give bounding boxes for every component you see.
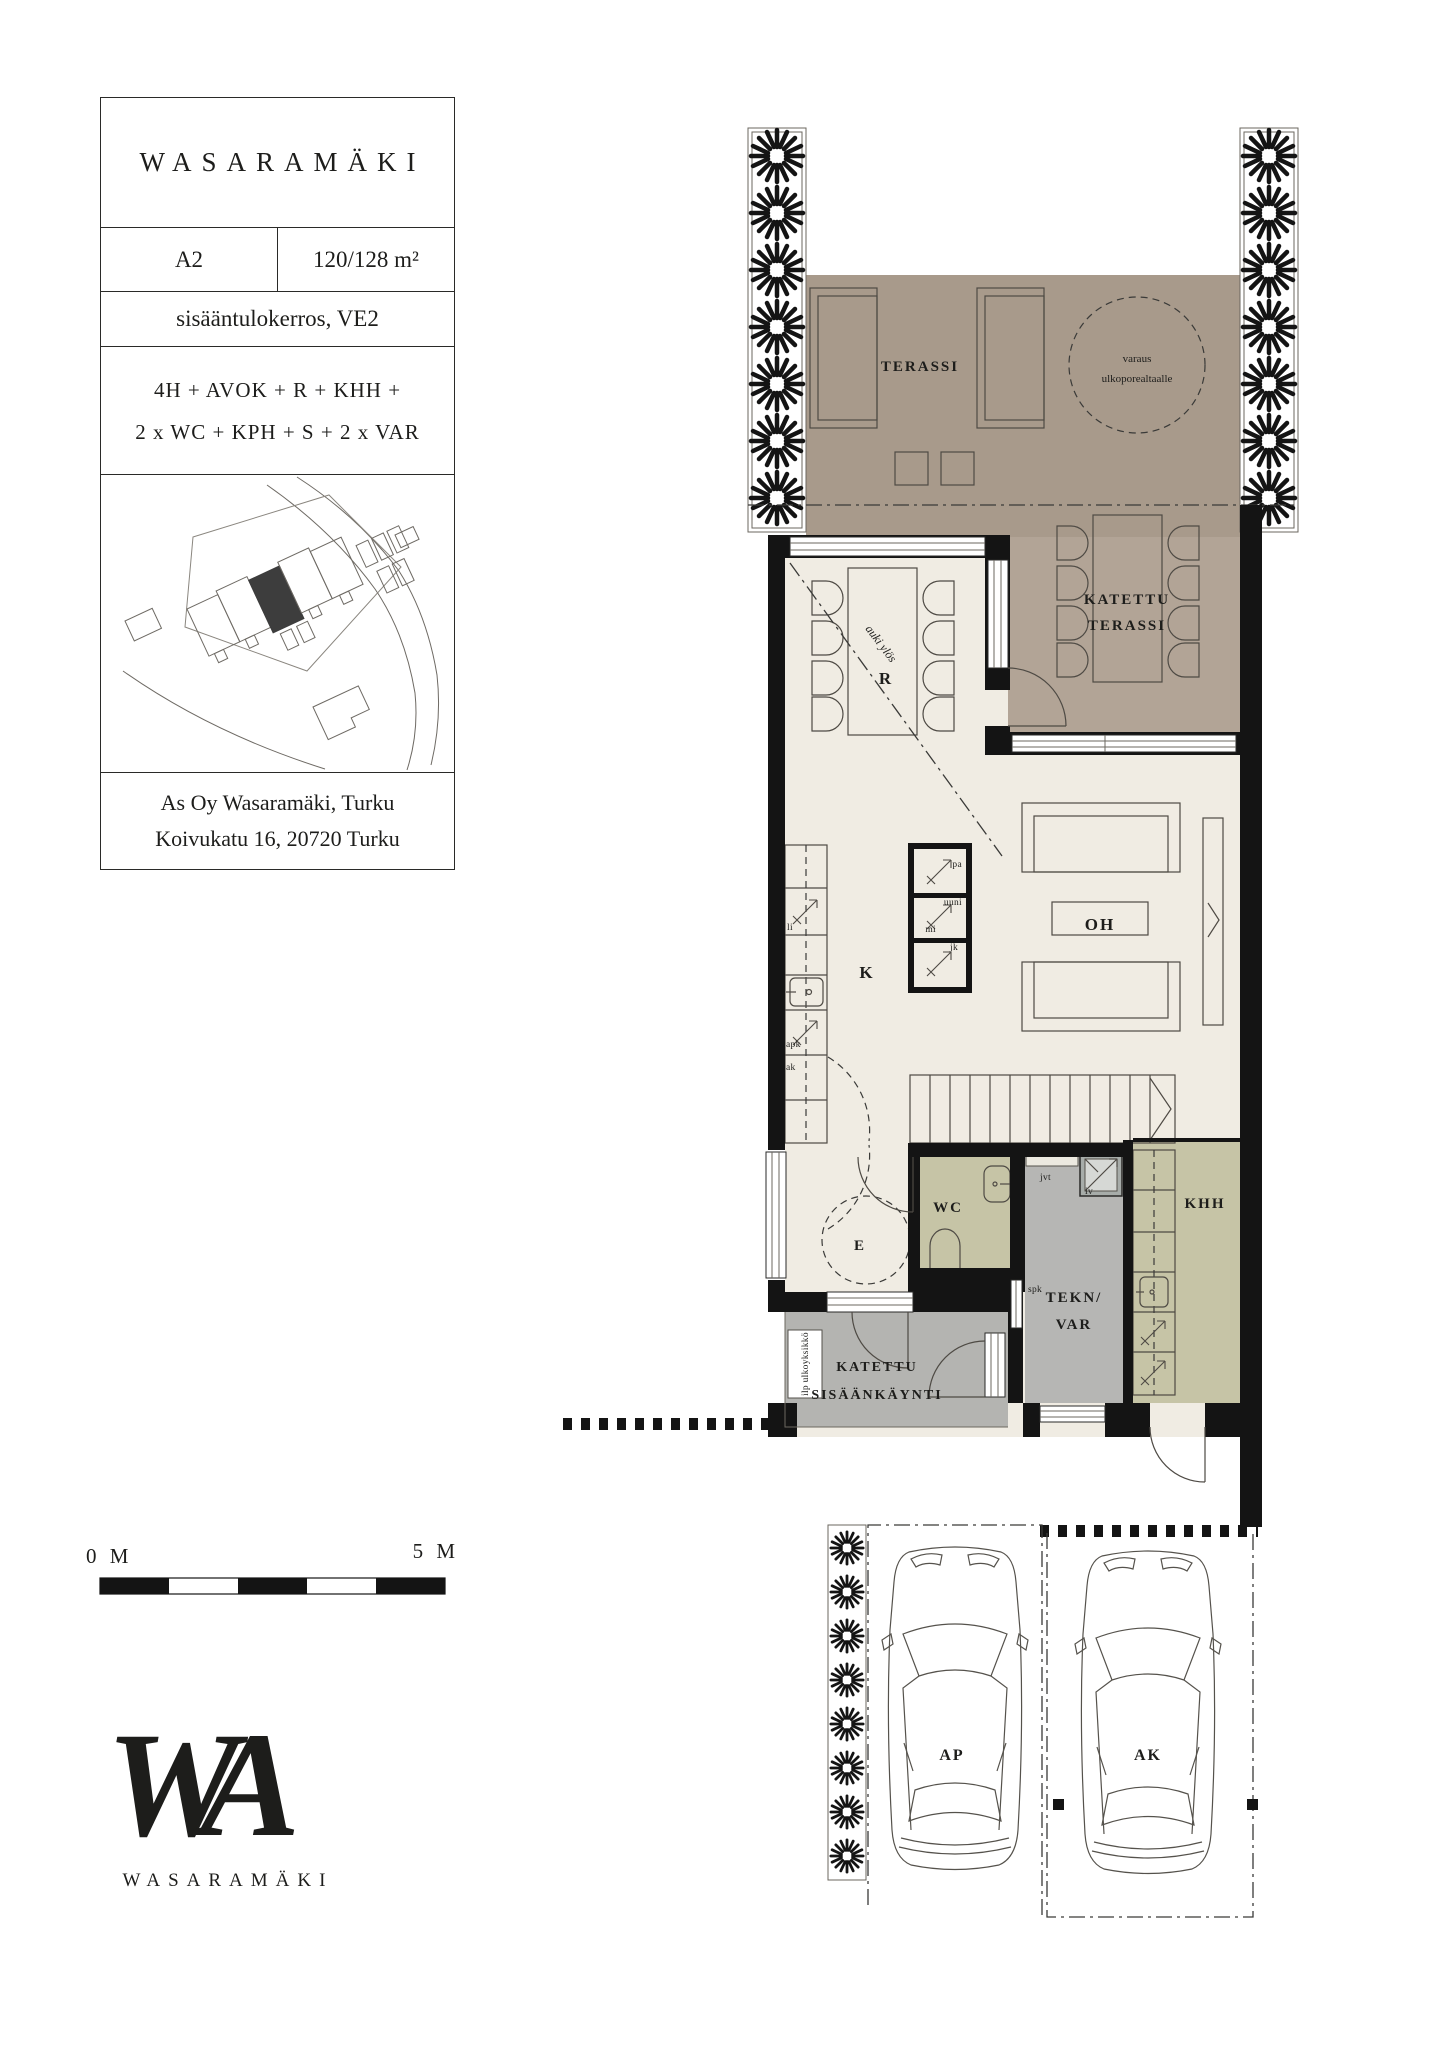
tekn-label-line2: VAR	[1056, 1317, 1093, 1333]
entry-label-line1: KATETTU	[836, 1360, 917, 1375]
appliance-cabinet	[908, 843, 972, 993]
cabinet-label: ak	[786, 1063, 796, 1073]
wc-label: WC	[933, 1200, 963, 1216]
iv-label: iv	[1085, 1187, 1093, 1197]
car-ak	[1075, 1551, 1221, 1874]
scale-five-label: 5 M	[413, 1539, 459, 1563]
stove-label: li	[787, 923, 793, 933]
tekn-label-line1: TEKN/	[1046, 1290, 1103, 1306]
covered-terrace-label-line2: TERASSI	[1088, 618, 1166, 634]
covered-terrace-label-line1: KATETTU	[1084, 592, 1170, 608]
scale-zero-label: 0 M	[86, 1544, 132, 1568]
kitchen-label: K	[859, 963, 874, 982]
khh-label: KHH	[1184, 1196, 1225, 1212]
hall-label: E	[854, 1238, 866, 1254]
living-room-label: OH	[1085, 915, 1115, 934]
dining-label: R	[879, 669, 893, 688]
hot-tub-label-line1: varaus	[1123, 353, 1152, 365]
covered-terrace-floor	[1008, 537, 1240, 755]
logo-wordmark: WASARAMÄKI	[123, 1870, 334, 1891]
hot-tub-label-line2: ulkoporealtaalle	[1102, 373, 1173, 385]
hedge-right	[1240, 128, 1298, 532]
parking-hedge	[828, 1525, 866, 1880]
hedge-left	[748, 128, 806, 532]
parking-ap-label: AP	[939, 1747, 964, 1764]
car-ap	[882, 1547, 1028, 1870]
freezer-label: pa	[952, 860, 962, 870]
carport-post-left	[1053, 1799, 1064, 1810]
heat-pump-label: ilp ulkoyksikkö	[801, 1332, 811, 1396]
jvt-label: jvt	[1039, 1173, 1051, 1183]
microwave-label: mi	[925, 925, 936, 935]
floorplan-page: WASARAMÄKI A2 120/128 m² sisääntulokerro…	[0, 0, 1448, 2048]
oven-label: uuni	[944, 898, 962, 908]
parking-ak-label: AK	[1134, 1747, 1162, 1764]
terrace-label: TERASSI	[881, 359, 959, 375]
carport-post-right	[1247, 1799, 1258, 1810]
terrace-floor	[806, 275, 1240, 537]
dishwasher-label: apk	[786, 1040, 801, 1050]
entry-label-line2: SISÄÄNKÄYNTI	[811, 1387, 942, 1403]
logo-monogram: WA	[106, 1702, 294, 1868]
spk-label: spk	[1028, 1285, 1042, 1295]
fridge-label: jk	[949, 943, 958, 953]
scale-bar	[100, 1578, 445, 1594]
floorplan-drawing: varaus ulkoporealtaalle TERASSI KATETTU …	[0, 0, 1448, 2048]
